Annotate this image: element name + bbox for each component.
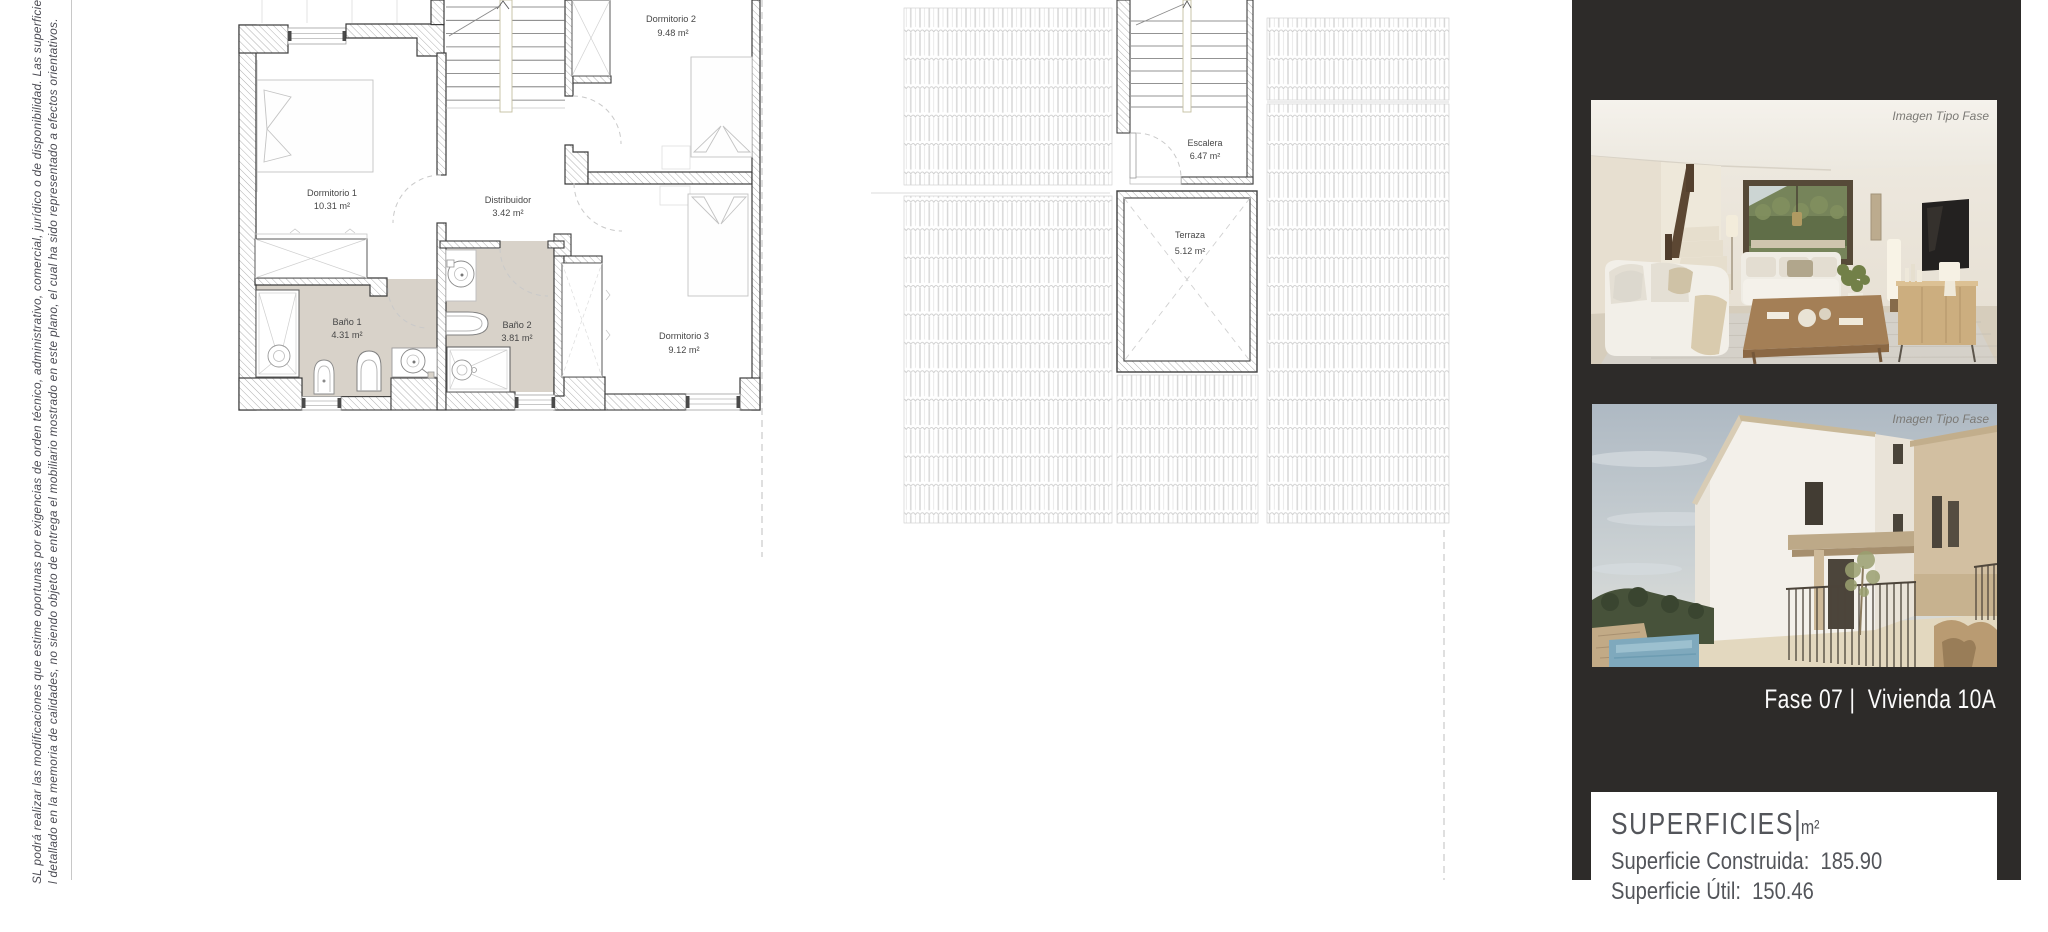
- svg-text:4.31 m²: 4.31 m²: [331, 330, 362, 340]
- svg-text:Dormitorio 3: Dormitorio 3: [659, 331, 709, 341]
- svg-text:Baño 2: Baño 2: [502, 320, 531, 330]
- svg-text:10.31 m²: 10.31 m²: [314, 201, 350, 211]
- svg-text:Imagen Tipo Fase: Imagen Tipo Fase: [1892, 109, 1989, 123]
- svg-text:Terraza: Terraza: [1175, 230, 1205, 240]
- svg-text:5.12 m²: 5.12 m²: [1175, 246, 1206, 256]
- svg-text:3.42 m²: 3.42 m²: [492, 208, 523, 218]
- svg-text:6.47 m²: 6.47 m²: [1190, 151, 1221, 161]
- svg-text:Dormitorio 2: Dormitorio 2: [646, 14, 696, 24]
- svg-text:Imagen Tipo Fase: Imagen Tipo Fase: [1892, 412, 1989, 426]
- svg-text:9.48 m²: 9.48 m²: [657, 28, 688, 38]
- svg-text:9.12 m²: 9.12 m²: [668, 345, 699, 355]
- svg-text:Escalera: Escalera: [1187, 138, 1222, 148]
- svg-text:Distribuidor: Distribuidor: [485, 195, 531, 205]
- svg-text:3.81 m²: 3.81 m²: [501, 333, 532, 343]
- svg-text:Baño 1: Baño 1: [332, 317, 361, 327]
- svg-text:Dormitorio 1: Dormitorio 1: [307, 188, 357, 198]
